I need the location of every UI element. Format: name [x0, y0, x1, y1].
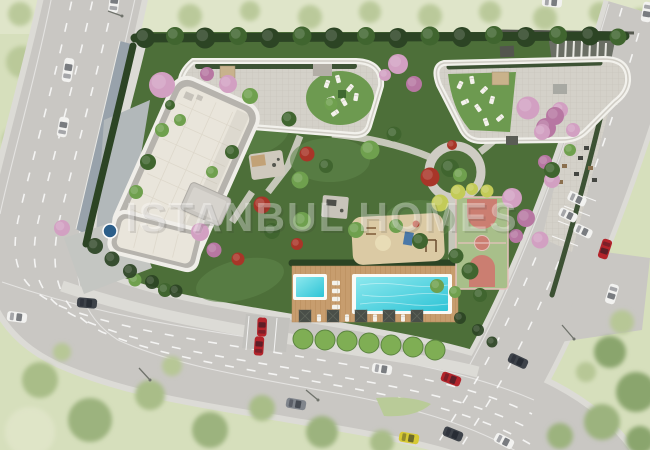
- site-plan-render: ISTANBUL HOMES ISTANBUL HOMES: [0, 0, 650, 450]
- dining-table: [500, 46, 515, 58]
- pergola: [492, 72, 509, 85]
- watermark-text: ISTANBUL HOMES: [125, 194, 518, 240]
- dining-table: [506, 136, 518, 145]
- aerial-render-canvas: ISTANBUL HOMES ISTANBUL HOMES: [0, 0, 650, 450]
- car: [77, 297, 98, 309]
- spa-pool: [103, 224, 117, 238]
- parked-car: [254, 336, 265, 356]
- kids-pool: [296, 277, 324, 297]
- pool-area: [292, 263, 458, 360]
- shade-structure: [553, 84, 567, 94]
- planter: [338, 90, 346, 98]
- watermark: ISTANBUL HOMES ISTANBUL HOMES: [125, 194, 520, 242]
- pergola: [313, 63, 332, 76]
- parked-car: [257, 317, 267, 336]
